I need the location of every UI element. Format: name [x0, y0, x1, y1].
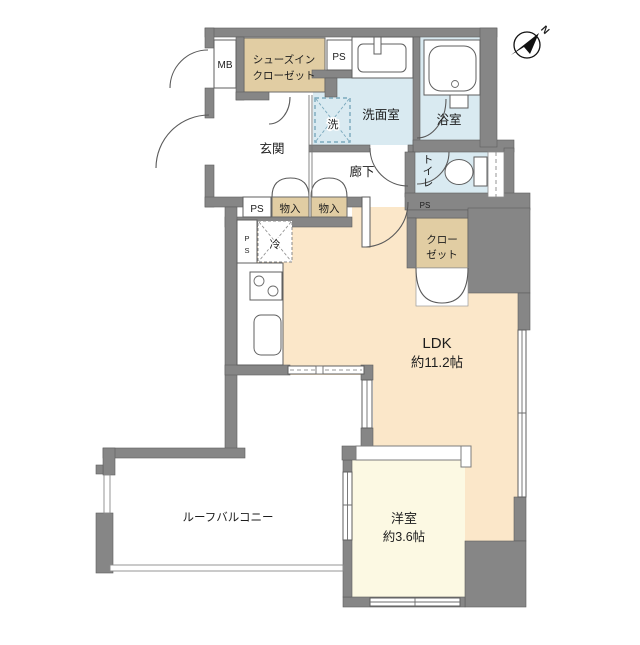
ps-shaft-p-label: P [244, 234, 249, 243]
closet-label-2: ゼット [426, 249, 458, 261]
closet-doors [416, 268, 468, 306]
kitchen-sink-icon [254, 315, 281, 355]
floorplan-page: N MB PS シューズイン クローゼット 洗面室 洗 浴室 玄関 廊下 トイレ… [0, 0, 640, 640]
ldk-size-label: 約11.2帖 [411, 355, 463, 370]
ldk-label: LDK [422, 335, 451, 352]
balcony-rail-south [110, 565, 343, 571]
entrance-door-arc [156, 115, 209, 168]
fridge-label: 冷 [270, 238, 281, 251]
washer-label: 洗 [328, 118, 339, 131]
ps-top-label: PS [332, 52, 346, 63]
window-western-south [370, 598, 460, 606]
storage-right-label: 物入 [319, 202, 340, 215]
washroom-label: 洗面室 [362, 107, 400, 122]
shoes-closet-door-arc [269, 97, 290, 124]
vanity-sink-icon [352, 37, 413, 78]
storage-bifold-arcs [272, 178, 347, 197]
stove-icon [250, 272, 282, 300]
compass-icon: N [511, 24, 551, 58]
ldk-door-leaf [362, 197, 370, 247]
window-ldk-southwest [362, 380, 372, 428]
shoes-closet-label-1: シューズイン [253, 53, 315, 66]
room-western-floor [343, 460, 465, 597]
western-room-label: 洋室 [391, 511, 417, 526]
window-western-west [343, 472, 352, 540]
compass-north-label: N [538, 24, 551, 37]
mb-label: MB [218, 60, 233, 71]
closet-label-1: クロー [426, 234, 458, 246]
balcony-rail-west [104, 475, 110, 513]
floorplan-canvas: N MB PS シューズイン クローゼット 洗面室 洗 浴室 玄関 廊下 トイレ… [0, 0, 640, 640]
ps-small-label: PS [420, 201, 431, 210]
bath-label: 浴室 [436, 112, 461, 127]
hallway-label: 廊下 [349, 164, 374, 179]
western-size-label: 約3.6帖 [383, 529, 425, 544]
toilet-label: トイレ [423, 154, 434, 189]
window-ldk-balcony [288, 366, 364, 374]
shoes-closet-label-2: クローゼット [253, 70, 316, 82]
window-ldk-east [518, 330, 526, 497]
entrance-label: 玄関 [259, 141, 284, 156]
mb-door-arc [170, 50, 208, 88]
washroom-door-arc [370, 148, 408, 186]
storage-left-label: 物入 [280, 202, 301, 215]
roof-balcony-label: ルーフバルコニー [182, 511, 273, 524]
ps-shaft-s-label: S [244, 246, 249, 255]
ps-mid-label: PS [250, 204, 264, 215]
